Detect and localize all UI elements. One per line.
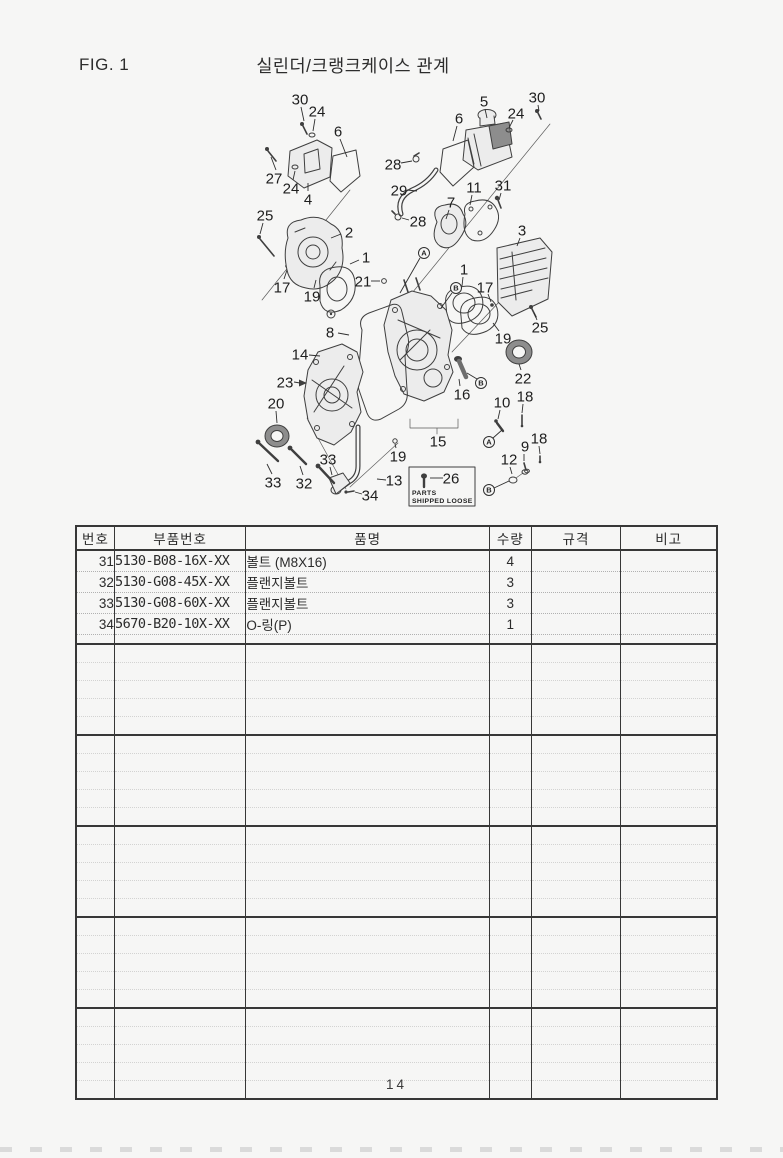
table-cell: 플랜지볼트 bbox=[246, 593, 490, 614]
callout-15: 15 bbox=[430, 433, 447, 450]
page-number: 14 bbox=[75, 1077, 718, 1092]
leader-line bbox=[267, 464, 272, 474]
table-row-empty bbox=[76, 754, 717, 772]
leader-line bbox=[453, 126, 457, 141]
table-cell: 플랜지볼트 bbox=[246, 572, 490, 593]
empty-table-block bbox=[76, 644, 717, 735]
callout-34: 34 bbox=[362, 487, 379, 504]
table-row-empty bbox=[76, 735, 717, 754]
table-cell bbox=[114, 772, 245, 790]
table-cell bbox=[114, 1045, 245, 1063]
table-row-empty bbox=[76, 1008, 717, 1027]
table-cell bbox=[621, 826, 717, 845]
leader-line bbox=[470, 195, 472, 205]
table-cell bbox=[114, 808, 245, 827]
callout-29: 29 bbox=[391, 182, 408, 199]
table-cell: 3 bbox=[489, 572, 531, 593]
callout-25: 25 bbox=[257, 207, 274, 224]
parts-table-body: 315130-B08-16X-XX볼트 (M8X16)4325130-G08-4… bbox=[76, 550, 717, 644]
table-cell bbox=[114, 863, 245, 881]
leader-line bbox=[498, 410, 500, 419]
table-cell bbox=[76, 754, 114, 772]
table-cell bbox=[114, 899, 245, 918]
table-cell bbox=[246, 1008, 490, 1027]
leader-line bbox=[350, 260, 359, 264]
table-cell bbox=[621, 699, 717, 717]
table-cell bbox=[114, 1008, 245, 1027]
callout-10: 10 bbox=[494, 394, 511, 411]
leader-line bbox=[522, 404, 523, 413]
table-cell bbox=[489, 881, 531, 899]
table-cell bbox=[76, 790, 114, 808]
table-cell bbox=[246, 635, 490, 645]
table-cell bbox=[246, 735, 490, 754]
table-cell bbox=[489, 772, 531, 790]
table-cell bbox=[621, 717, 717, 736]
table-cell bbox=[531, 826, 621, 845]
table-cell bbox=[621, 808, 717, 827]
table-cell bbox=[489, 845, 531, 863]
table-cell bbox=[76, 1027, 114, 1045]
table-cell: 1 bbox=[489, 614, 531, 635]
table-row-empty bbox=[76, 863, 717, 881]
reference-marker-label: B bbox=[486, 486, 492, 495]
table-cell bbox=[621, 990, 717, 1009]
table-cell bbox=[76, 735, 114, 754]
table-cell bbox=[114, 644, 245, 663]
table-row-empty bbox=[76, 717, 717, 736]
table-cell bbox=[114, 845, 245, 863]
leader-line bbox=[494, 481, 509, 488]
callout-4: 4 bbox=[304, 191, 312, 208]
table-cell bbox=[489, 635, 531, 645]
table-row-empty bbox=[76, 699, 717, 717]
table-cell: 5130-G08-60X-XX bbox=[114, 593, 245, 614]
empty-table-block bbox=[76, 735, 717, 826]
table-cell bbox=[489, 826, 531, 845]
callout-30: 30 bbox=[292, 91, 309, 108]
callout-24: 24 bbox=[508, 105, 525, 122]
table-cell bbox=[246, 954, 490, 972]
callout-12: 12 bbox=[501, 451, 518, 468]
col-header-part-number: 부품번호 bbox=[114, 526, 245, 550]
reference-marker-label: A bbox=[421, 249, 427, 258]
table-cell bbox=[489, 917, 531, 936]
callout-26: 26 bbox=[443, 470, 460, 487]
table-cell bbox=[246, 1045, 490, 1063]
table-cell bbox=[246, 826, 490, 845]
table-cell bbox=[246, 881, 490, 899]
table-cell bbox=[246, 845, 490, 863]
table-cell bbox=[246, 936, 490, 954]
table-cell bbox=[246, 663, 490, 681]
callout-7: 7 bbox=[447, 194, 455, 211]
table-row-empty bbox=[76, 663, 717, 681]
table-row-empty bbox=[76, 972, 717, 990]
leader-line bbox=[300, 466, 303, 475]
table-cell bbox=[76, 954, 114, 972]
table-cell bbox=[114, 954, 245, 972]
callout-19: 19 bbox=[495, 330, 512, 347]
leader-line bbox=[284, 270, 287, 279]
table-cell bbox=[489, 735, 531, 754]
leader-line bbox=[462, 277, 463, 286]
table-cell: 31 bbox=[76, 550, 114, 572]
table-row-empty bbox=[76, 845, 717, 863]
table-cell bbox=[531, 663, 621, 681]
callout-3: 3 bbox=[518, 222, 526, 239]
table-cell bbox=[76, 699, 114, 717]
table-cell bbox=[531, 681, 621, 699]
loose-box-text-line1: PARTS bbox=[412, 490, 437, 497]
table-cell bbox=[531, 899, 621, 918]
table-cell bbox=[531, 572, 621, 593]
table-cell bbox=[531, 593, 621, 614]
callout-16: 16 bbox=[454, 386, 471, 403]
table-row-empty bbox=[76, 917, 717, 936]
table-cell bbox=[621, 681, 717, 699]
table-cell: 32 bbox=[76, 572, 114, 593]
table-cell bbox=[76, 1008, 114, 1027]
table-cell bbox=[531, 635, 621, 645]
table-cell bbox=[114, 663, 245, 681]
table-cell bbox=[489, 790, 531, 808]
table-cell bbox=[114, 717, 245, 736]
table-cell bbox=[489, 717, 531, 736]
table-row: 315130-B08-16X-XX볼트 (M8X16)4 bbox=[76, 550, 717, 572]
callout-8: 8 bbox=[326, 324, 334, 341]
table-cell bbox=[621, 1008, 717, 1027]
col-header-spec: 규격 bbox=[531, 526, 621, 550]
table-cell bbox=[489, 954, 531, 972]
table-cell bbox=[246, 790, 490, 808]
table-row-empty bbox=[76, 954, 717, 972]
table-cell bbox=[246, 717, 490, 736]
callout-27: 27 bbox=[266, 170, 283, 187]
table-cell bbox=[246, 772, 490, 790]
table-cell bbox=[621, 614, 717, 635]
callout-28: 28 bbox=[410, 213, 427, 230]
callout-32: 32 bbox=[296, 475, 313, 492]
table-row-empty bbox=[76, 681, 717, 699]
table-cell bbox=[114, 881, 245, 899]
callout-11: 11 bbox=[466, 179, 482, 196]
table-cell bbox=[489, 936, 531, 954]
table-cell bbox=[246, 972, 490, 990]
callout-33: 33 bbox=[265, 474, 282, 491]
table-row-empty bbox=[76, 990, 717, 1009]
callout-14: 14 bbox=[292, 346, 309, 363]
table-cell bbox=[621, 954, 717, 972]
callout-6: 6 bbox=[455, 110, 463, 127]
callout-23: 23 bbox=[277, 374, 294, 391]
callout-17: 17 bbox=[477, 279, 494, 296]
callout-28: 28 bbox=[385, 156, 402, 173]
table-cell: 볼트 (M8X16) bbox=[246, 550, 490, 572]
col-header-qty: 수량 bbox=[489, 526, 531, 550]
table-cell bbox=[246, 699, 490, 717]
table-cell bbox=[621, 735, 717, 754]
reference-marker-label: B bbox=[478, 379, 484, 388]
callout-19: 19 bbox=[390, 448, 407, 465]
table-cell bbox=[621, 772, 717, 790]
callout-6: 6 bbox=[334, 123, 342, 140]
table-cell bbox=[76, 717, 114, 736]
col-header-remarks: 비고 bbox=[621, 526, 717, 550]
table-cell bbox=[531, 614, 621, 635]
table-cell bbox=[621, 936, 717, 954]
leader-line bbox=[493, 430, 502, 438]
table-row-empty bbox=[76, 772, 717, 790]
table-cell bbox=[621, 917, 717, 936]
callout-22: 22 bbox=[515, 370, 532, 387]
table-cell bbox=[114, 681, 245, 699]
leader-line bbox=[459, 379, 460, 386]
table-cell bbox=[621, 1045, 717, 1063]
table-row-empty bbox=[76, 790, 717, 808]
table-cell bbox=[76, 899, 114, 918]
table-row-empty bbox=[76, 881, 717, 899]
callout-33: 33 bbox=[320, 451, 337, 468]
leader-line bbox=[276, 411, 277, 423]
table-cell bbox=[76, 808, 114, 827]
callout-25: 25 bbox=[532, 319, 549, 336]
table-cell: 3 bbox=[489, 593, 531, 614]
col-header-no: 번호 bbox=[76, 526, 114, 550]
table-cell bbox=[114, 635, 245, 645]
table-cell bbox=[531, 772, 621, 790]
table-cell bbox=[76, 972, 114, 990]
table-cell bbox=[621, 754, 717, 772]
table-cell bbox=[489, 1027, 531, 1045]
callout-18: 18 bbox=[531, 430, 548, 447]
callout-31: 31 bbox=[495, 177, 512, 194]
table-cell bbox=[246, 808, 490, 827]
leader-line bbox=[402, 218, 409, 220]
parts-table: 번호 부품번호 품명 수량 규격 비고 315130-B08-16X-XX볼트 … bbox=[75, 525, 718, 1100]
callout-24: 24 bbox=[283, 180, 300, 197]
table-row: 325130-G08-45X-XX플랜지볼트3 bbox=[76, 572, 717, 593]
scan-noise-strip bbox=[0, 1147, 783, 1152]
table-row: 345670-B20-10X-XXO-링(P)1 bbox=[76, 614, 717, 635]
table-cell bbox=[76, 881, 114, 899]
table-cell bbox=[531, 845, 621, 863]
table-cell bbox=[489, 899, 531, 918]
diagram-line-art bbox=[256, 109, 552, 506]
table-cell bbox=[531, 644, 621, 663]
empty-table-block bbox=[76, 917, 717, 1008]
table-cell bbox=[76, 772, 114, 790]
callout-1: 1 bbox=[362, 249, 370, 266]
table-cell bbox=[489, 754, 531, 772]
table-row-empty bbox=[76, 1027, 717, 1045]
table-cell bbox=[246, 754, 490, 772]
table-cell bbox=[489, 663, 531, 681]
leader-line bbox=[467, 373, 477, 379]
table-row-empty bbox=[76, 826, 717, 845]
table-cell bbox=[531, 1008, 621, 1027]
exploded-diagram: PARTS SHIPPED LOOSE 30246272442521719121… bbox=[250, 85, 565, 515]
table-cell bbox=[114, 972, 245, 990]
table-cell: 5670-B20-10X-XX bbox=[114, 614, 245, 635]
table-cell bbox=[531, 717, 621, 736]
callout-9: 9 bbox=[521, 438, 529, 455]
table-row-empty bbox=[76, 808, 717, 827]
parts-table-header-row: 번호 부품번호 품명 수량 규격 비고 bbox=[76, 526, 717, 550]
table-cell bbox=[531, 863, 621, 881]
table-cell: O-링(P) bbox=[246, 614, 490, 635]
catalog-page: FIG. 1 실린더/크랭크케이스 관계 bbox=[0, 0, 783, 1158]
table-cell: 33 bbox=[76, 593, 114, 614]
table-cell bbox=[114, 917, 245, 936]
callout-21: 21 bbox=[355, 273, 372, 290]
table-cell: 4 bbox=[489, 550, 531, 572]
table-cell bbox=[246, 863, 490, 881]
table-cell bbox=[489, 1045, 531, 1063]
leader-line bbox=[338, 333, 349, 335]
table-cell bbox=[76, 663, 114, 681]
table-cell bbox=[531, 972, 621, 990]
table-cell bbox=[114, 790, 245, 808]
table-cell bbox=[76, 917, 114, 936]
leader-line bbox=[401, 161, 412, 163]
leader-line bbox=[377, 479, 386, 480]
table-row-empty bbox=[76, 1045, 717, 1063]
table-row: 335130-G08-60X-XX플랜지볼트3 bbox=[76, 593, 717, 614]
table-cell: 5130-B08-16X-XX bbox=[114, 550, 245, 572]
table-cell bbox=[246, 1027, 490, 1045]
callout-20: 20 bbox=[268, 395, 285, 412]
table-cell bbox=[531, 790, 621, 808]
table-cell bbox=[621, 593, 717, 614]
col-header-part-name: 품명 bbox=[246, 526, 490, 550]
table-cell bbox=[531, 550, 621, 572]
table-cell bbox=[246, 644, 490, 663]
table-cell bbox=[489, 644, 531, 663]
table-cell bbox=[621, 572, 717, 593]
table-cell bbox=[489, 699, 531, 717]
table-cell bbox=[531, 881, 621, 899]
table-cell bbox=[531, 990, 621, 1009]
table-row-empty bbox=[76, 899, 717, 918]
reference-marker-label: A bbox=[486, 438, 492, 447]
table-cell bbox=[621, 663, 717, 681]
table-cell bbox=[531, 754, 621, 772]
callout-24: 24 bbox=[309, 103, 326, 120]
table-cell bbox=[76, 936, 114, 954]
table-cell bbox=[621, 899, 717, 918]
table-cell bbox=[531, 954, 621, 972]
table-cell bbox=[114, 699, 245, 717]
table-cell bbox=[114, 936, 245, 954]
table-cell bbox=[114, 735, 245, 754]
reference-marker-label: B bbox=[453, 284, 459, 293]
table-cell bbox=[621, 1027, 717, 1045]
table-cell bbox=[489, 1008, 531, 1027]
table-cell bbox=[621, 644, 717, 663]
table-cell bbox=[246, 681, 490, 699]
leader-line bbox=[301, 107, 304, 121]
table-cell bbox=[531, 1027, 621, 1045]
leader-line bbox=[260, 223, 263, 234]
table-cell bbox=[76, 845, 114, 863]
table-cell bbox=[531, 1045, 621, 1063]
table-cell: 5130-G08-45X-XX bbox=[114, 572, 245, 593]
table-cell bbox=[621, 845, 717, 863]
table-cell bbox=[489, 808, 531, 827]
table-cell bbox=[76, 681, 114, 699]
table-cell bbox=[531, 699, 621, 717]
callout-19: 19 bbox=[304, 288, 321, 305]
table-row-filler bbox=[76, 635, 717, 645]
table-cell bbox=[76, 990, 114, 1009]
table-cell bbox=[76, 826, 114, 845]
table-cell bbox=[531, 917, 621, 936]
table-cell bbox=[531, 936, 621, 954]
table-cell bbox=[489, 681, 531, 699]
table-cell bbox=[489, 990, 531, 1009]
empty-table-block bbox=[76, 826, 717, 917]
callout-17: 17 bbox=[274, 279, 291, 296]
table-row-empty bbox=[76, 936, 717, 954]
table-cell bbox=[76, 863, 114, 881]
table-cell bbox=[621, 972, 717, 990]
callout-18: 18 bbox=[517, 388, 534, 405]
table-cell bbox=[621, 881, 717, 899]
table-cell bbox=[114, 826, 245, 845]
table-cell bbox=[531, 808, 621, 827]
table-cell bbox=[76, 644, 114, 663]
table-cell: 34 bbox=[76, 614, 114, 635]
table-cell bbox=[621, 863, 717, 881]
table-cell bbox=[621, 550, 717, 572]
loose-box-text-line2: SHIPPED LOOSE bbox=[412, 498, 473, 505]
table-cell bbox=[76, 635, 114, 645]
callout-1: 1 bbox=[460, 261, 468, 278]
table-cell bbox=[531, 735, 621, 754]
table-cell bbox=[246, 990, 490, 1009]
leader-line bbox=[519, 364, 521, 370]
table-cell bbox=[114, 754, 245, 772]
table-row-empty bbox=[76, 644, 717, 663]
callout-13: 13 bbox=[386, 472, 403, 489]
table-cell bbox=[76, 1045, 114, 1063]
page-title: 실린더/크랭크케이스 관계 bbox=[238, 53, 468, 78]
leader-line bbox=[313, 119, 315, 131]
callout-2: 2 bbox=[345, 224, 353, 241]
leader-line bbox=[400, 258, 420, 293]
table-cell bbox=[114, 1027, 245, 1045]
callout-5: 5 bbox=[480, 93, 488, 110]
table-cell bbox=[621, 635, 717, 645]
figure-label: FIG. 1 bbox=[79, 55, 129, 75]
callout-30: 30 bbox=[529, 89, 546, 106]
table-cell bbox=[246, 899, 490, 918]
table-cell bbox=[489, 972, 531, 990]
table-cell bbox=[246, 917, 490, 936]
table-cell bbox=[114, 990, 245, 1009]
table-cell bbox=[489, 863, 531, 881]
table-cell bbox=[621, 790, 717, 808]
